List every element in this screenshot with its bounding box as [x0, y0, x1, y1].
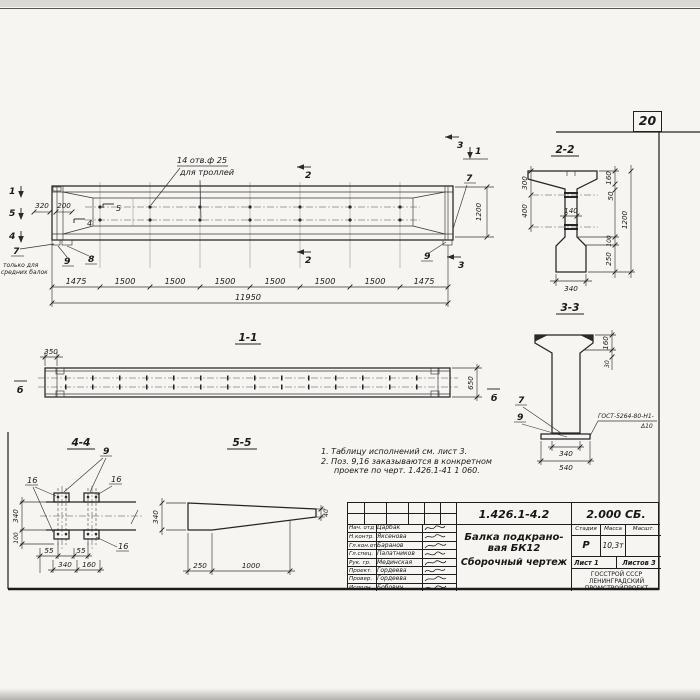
dim-50: 50 [606, 191, 615, 201]
section-1-1-title: 1-1 [239, 332, 258, 344]
scale-value-empty [625, 536, 661, 556]
stamp-row: Нач. отд Царбак [348, 524, 456, 532]
stamp-sheets-row: Лист 1 Листов 3 [572, 556, 661, 568]
callout-9-sec44: 9 [103, 446, 109, 457]
stage-value: Р [572, 536, 600, 556]
series-label: 2.000 СБ. [586, 508, 645, 521]
stamp-name: Бобович [377, 584, 421, 592]
col-stage: Стадия [572, 524, 600, 535]
callout-7-sec33: 7 [518, 395, 525, 406]
callout-7: 7 [13, 246, 20, 257]
stamp-header-row: Стадия Масса Масшт. [572, 524, 661, 535]
seg-dim: 1475 [66, 276, 87, 286]
col-mass: Масса [600, 524, 625, 535]
marker-2-top: 2 [305, 170, 311, 181]
dim-100-sec44: 100 [13, 532, 20, 544]
seg-dim: 1500 [315, 276, 336, 286]
seg-dim: 1475 [414, 276, 435, 286]
org-line1: ГОССТРОЙ СССР [572, 571, 661, 578]
section-4-4-title: 4-4 [71, 437, 91, 449]
trolley-holes [85, 205, 420, 221]
sheet-number: 20 [639, 113, 656, 128]
series-cell: 2.000 СБ. [571, 503, 660, 524]
height-dim: 1200 [455, 185, 494, 240]
section-1-1: 1-1 350 [14, 332, 500, 404]
section-5-5-dims: 340 40 250 1000 [151, 498, 330, 575]
section-5-5: 5-5 340 40 250 1000 [151, 437, 330, 575]
left-callouts: 7 только для средних балок 9 8 [1, 244, 97, 276]
grid-lines [100, 182, 400, 268]
stamp-name: Царбак [377, 524, 421, 532]
seg-dim: 1500 [115, 276, 136, 286]
org-line3: ПРОМСТРОЙПРОЕКТ [572, 585, 661, 592]
section-3-3-callouts: 7 9 [514, 395, 567, 437]
scan-edge-top [0, 0, 700, 7]
scan-edge-bottom [0, 688, 700, 700]
signature [423, 524, 447, 532]
dim-250: 250 [604, 252, 613, 266]
left-note-line1: только для [3, 262, 39, 269]
dim-overall: 11950 [235, 292, 261, 302]
seg-dim: 1500 [165, 276, 186, 286]
end-dims: 5 4 320 200 [32, 201, 122, 228]
dim-540: 540 [559, 463, 573, 472]
dim-250: 250 [193, 561, 207, 570]
org-cell: ГОССТРОЙ СССР ЛЕНИНГРАДСКИЙ ПРОМСТРОЙПРО… [572, 568, 661, 591]
stamp-role: Нач. отд [349, 524, 376, 532]
dim-650: 650 [466, 376, 475, 390]
seg-dim: 1500 [265, 276, 286, 286]
holes-note-line1: 14 отв.ф 25 [177, 155, 227, 165]
dim-200: 200 [57, 201, 71, 210]
marker-5: 5 [9, 208, 15, 219]
drawing-canvas: 14 отв.ф 25 для троллей 1 5 4 2 2 [0, 0, 700, 700]
dim-30: 30 [604, 360, 611, 368]
mass-value: 10,3т [600, 536, 625, 556]
stamp-values-row: Р 10,3т [572, 535, 661, 556]
section-2-2-title: 2-2 [556, 144, 575, 156]
callout-16-right: 16 [111, 474, 121, 484]
section-2-2: 2-2 300 400 140 160 50 [520, 144, 635, 293]
sheet-number-badge: 20 [633, 111, 662, 132]
dim-160: 160 [604, 171, 613, 185]
dim-340-sec55: 340 [151, 510, 160, 524]
marker-3-top: 3 [457, 140, 463, 151]
stamp-row: Исполн. Бобович [348, 583, 456, 592]
callout-16-bottom: 16 [118, 541, 128, 551]
holes-note-line2: для троллей [179, 167, 235, 177]
product-title-cell: Балка подкрано- вая БК12 Сборочный черте… [456, 524, 571, 591]
section-3-3: 3-3 ГОСТ-5264-80-Н1- Δ10 7 9 [514, 302, 657, 472]
blueprint-sheet: 14 отв.ф 25 для троллей 1 5 4 2 2 [0, 0, 700, 700]
dim-300: 300 [520, 176, 529, 190]
dim-140: 140 [564, 206, 578, 215]
section-3-3-title: 3-3 [561, 302, 580, 314]
title-block: 1.426.1-4.2 2.000 СБ. Нач. отд Царбак Н.… [347, 502, 659, 590]
callout-9: 9 [64, 256, 70, 267]
section-1-1-markers: б б [14, 381, 500, 404]
dim-55-b: 55 [76, 546, 86, 555]
dim-40: 40 [323, 509, 330, 517]
dim-160: 160 [82, 560, 96, 569]
dim-160-sec33: 160 [601, 336, 610, 350]
product-title-line2: вая БК12 [457, 543, 571, 554]
col-scale: Масшт. [625, 524, 661, 535]
cut-flags: 2 2 3 3 1 [297, 134, 488, 271]
dim-1200: 1200 [474, 202, 483, 221]
note-line-3: проекте по черт. 1.426.1-41 1 060. [321, 466, 526, 476]
section-markers-left: 1 5 4 [8, 186, 24, 243]
signature [423, 584, 447, 592]
note-line-2: 2. Поз. 9,16 заказываются в конкретном [321, 457, 526, 467]
callout-8: 8 [88, 254, 95, 265]
dim-1200-sec: 1200 [620, 210, 629, 229]
weld-spec-line1: ГОСТ-5264-80-Н1- [598, 413, 654, 420]
beam-outline [52, 186, 453, 245]
product-title-line3: Сборочный чертеж [457, 557, 571, 568]
dim-55-a: 55 [44, 546, 54, 555]
note-line-1: 1. Таблицу исполнений см. лист 3. [321, 447, 526, 457]
marker-b-left: б [17, 385, 23, 396]
dim-340: 340 [564, 284, 578, 293]
marker-2-bottom: 2 [305, 255, 311, 266]
weld-spec-line2: Δ10 [640, 423, 653, 430]
weld-note: ГОСТ-5264-80-Н1- Δ10 [590, 413, 657, 436]
doc-number-cell: 1.426.1-4.2 [456, 503, 571, 524]
revision-table [348, 503, 456, 524]
notes-block: 1. Таблицу исполнений см. лист 3. 2. Поз… [321, 447, 526, 476]
dim-1000: 1000 [242, 561, 261, 570]
dim-340b: 340 [58, 560, 72, 569]
callout-9-sec33: 9 [517, 412, 523, 423]
section-5-5-title: 5-5 [233, 437, 252, 449]
marker-1-right: 1 [475, 146, 481, 157]
flag-5: 5 [116, 203, 121, 213]
callout-16-left: 16 [27, 475, 37, 485]
marker-1: 1 [9, 186, 15, 197]
marker-b-right: б [491, 393, 497, 404]
stamp-right-block: Стадия Масса Масшт. Р 10,3т Лист 1 Листо… [571, 524, 660, 591]
dim-340-sec33: 340 [559, 449, 573, 458]
left-note-line2: средних балок [1, 269, 48, 276]
stamp-role: Исполн. [349, 584, 376, 592]
signature-rows: Нач. отд Царбак Н.контр. Яксенова Гл.кон… [348, 524, 456, 591]
callout-7-right: 7 [466, 173, 473, 184]
section-4-4: 4-4 9 16 [11, 437, 142, 573]
dim-340-sec44: 340 [11, 509, 20, 523]
dim-400: 400 [520, 204, 529, 218]
seg-dim: 1500 [215, 276, 236, 286]
elevation-view: 14 отв.ф 25 для троллей 1 5 4 2 2 [1, 134, 494, 307]
section-1-1-dims: 350 650 [40, 347, 482, 401]
seg-dim: 1500 [365, 276, 386, 286]
flag-4: 4 [87, 218, 92, 228]
product-title-line1: Балка подкрано- [457, 532, 571, 543]
marker-4: 4 [8, 231, 15, 242]
dim-350: 350 [44, 347, 58, 356]
dim-100: 100 [606, 235, 613, 247]
org-line2: ЛЕНИНГРАДСКИЙ [572, 578, 661, 585]
section-4-4-callouts: 9 16 16 16 [25, 446, 129, 551]
marker-3-bottom: 3 [458, 260, 464, 271]
dim-320: 320 [35, 201, 49, 210]
doc-number: 1.426.1-4.2 [479, 508, 550, 521]
